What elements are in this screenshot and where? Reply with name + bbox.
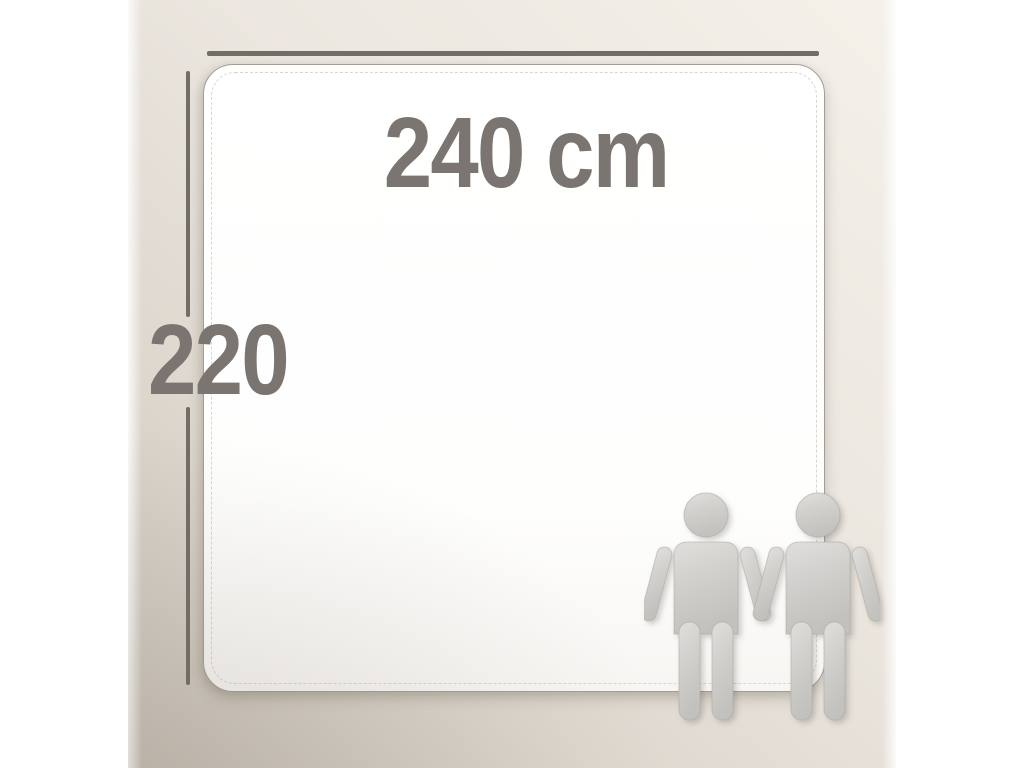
scale-figures (644, 492, 880, 722)
product-image-area: 240 cm 220 (128, 0, 896, 768)
width-label: 240 cm (384, 103, 648, 203)
left-edge-fade (128, 0, 142, 768)
person-icon (751, 493, 880, 720)
person-icon (644, 493, 773, 720)
right-edge-fade (882, 0, 896, 768)
height-label: 220 (141, 310, 294, 410)
height-dimension-line-upper (186, 71, 190, 317)
width-dimension-line (207, 51, 819, 56)
height-dimension-line-lower (186, 407, 190, 685)
